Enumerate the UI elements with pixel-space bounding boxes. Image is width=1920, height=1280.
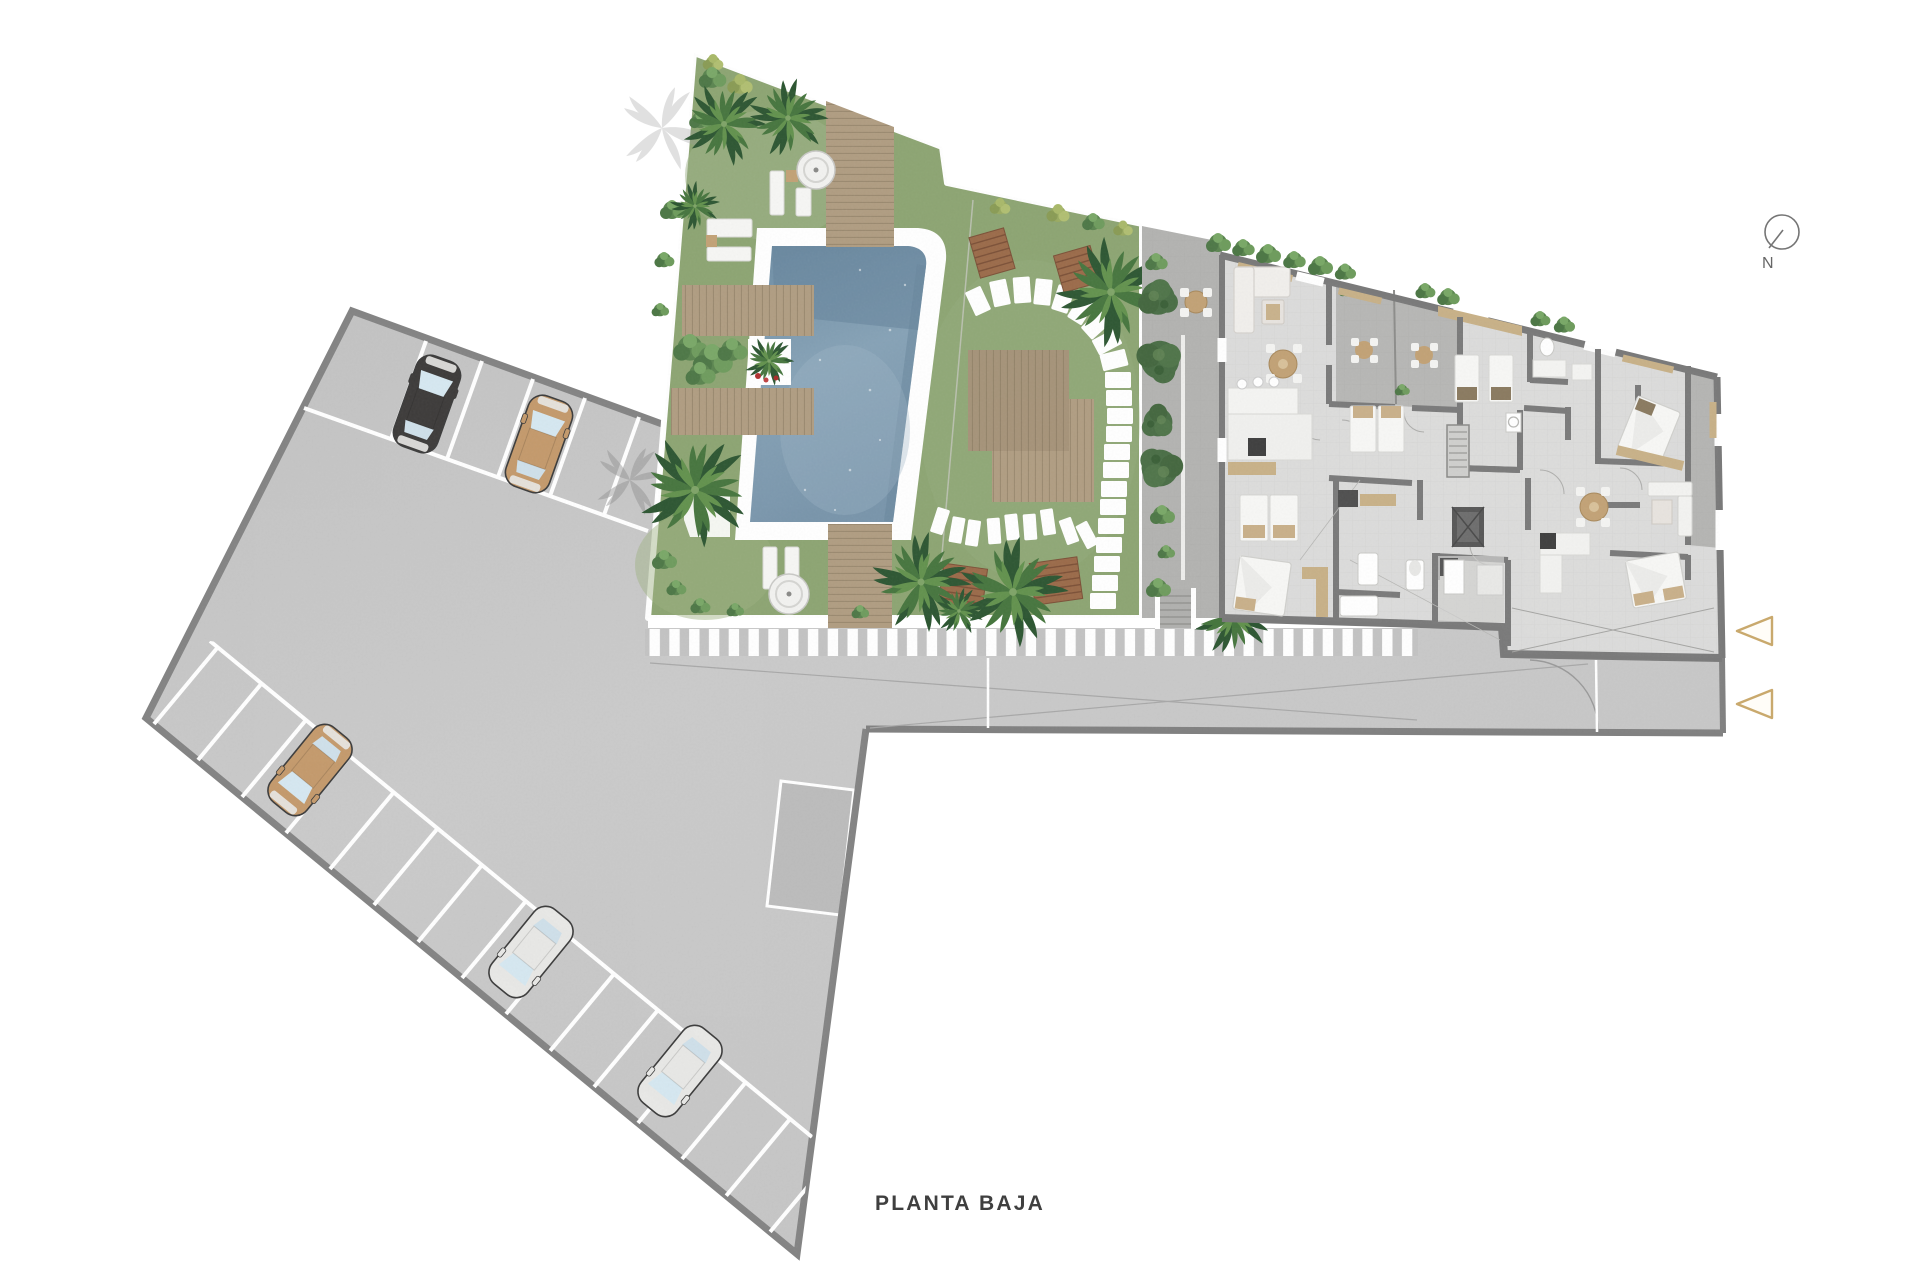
svg-text:PLANTA BAJA: PLANTA BAJA [875, 1192, 1045, 1215]
svg-text:N: N [1762, 255, 1774, 272]
